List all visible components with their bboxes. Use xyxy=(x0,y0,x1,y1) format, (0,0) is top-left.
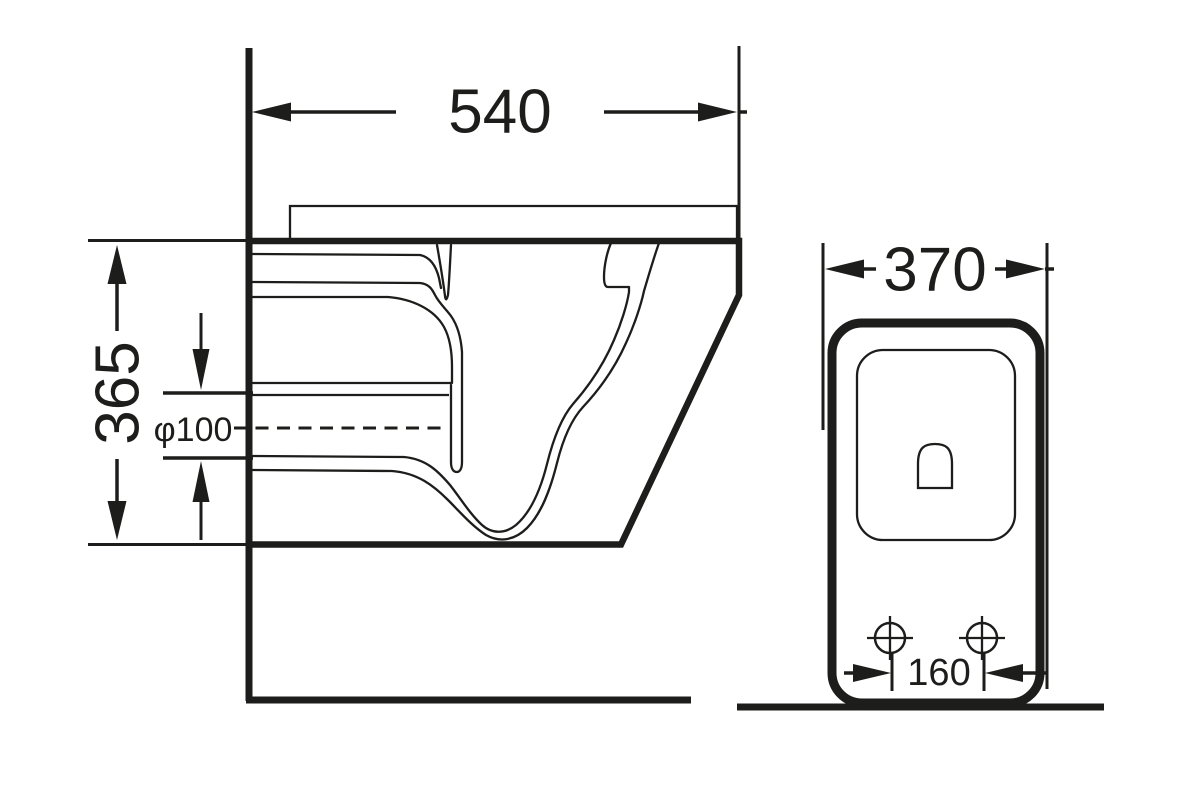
drain-outlet xyxy=(918,444,952,488)
dim-160-label: 160 xyxy=(907,652,970,694)
body-outline xyxy=(832,323,1040,703)
bolt-hole-left xyxy=(867,616,913,660)
dim-540-label: 540 xyxy=(448,78,551,147)
dim-365-arrowhead-down xyxy=(108,501,127,540)
dim-365-label: 365 xyxy=(84,341,153,444)
dim-100-arrowhead-down xyxy=(193,349,210,390)
dim-370-arrowhead-right xyxy=(1006,260,1045,279)
dim-540-arrowhead-left xyxy=(252,103,291,122)
dim-160-arrowhead-left xyxy=(853,664,891,682)
dim-100-arrowhead-up xyxy=(193,461,210,502)
dim-365-arrowhead-up xyxy=(108,245,127,284)
dim-160: 160 xyxy=(844,652,1047,694)
dim-160-arrowhead-right xyxy=(985,664,1023,682)
toilet-technical-drawing: 540 365 φ100 xyxy=(0,0,1200,800)
drawing-canvas: 540 365 φ100 xyxy=(0,0,1200,800)
dim-370-arrowhead-left xyxy=(825,260,864,279)
dim-100-label: φ100 xyxy=(154,411,233,449)
dim-370-label: 370 xyxy=(883,236,986,305)
rim-spud-channel xyxy=(437,245,451,299)
bowl-inner-wall xyxy=(250,297,452,383)
bowl-sump-outer-line xyxy=(250,243,659,539)
seat-profile xyxy=(290,206,737,239)
bowl-outline xyxy=(246,241,739,545)
front-view xyxy=(737,323,1104,707)
dim-540-arrowhead-right xyxy=(698,103,737,122)
dim-540: 540 xyxy=(252,46,747,240)
